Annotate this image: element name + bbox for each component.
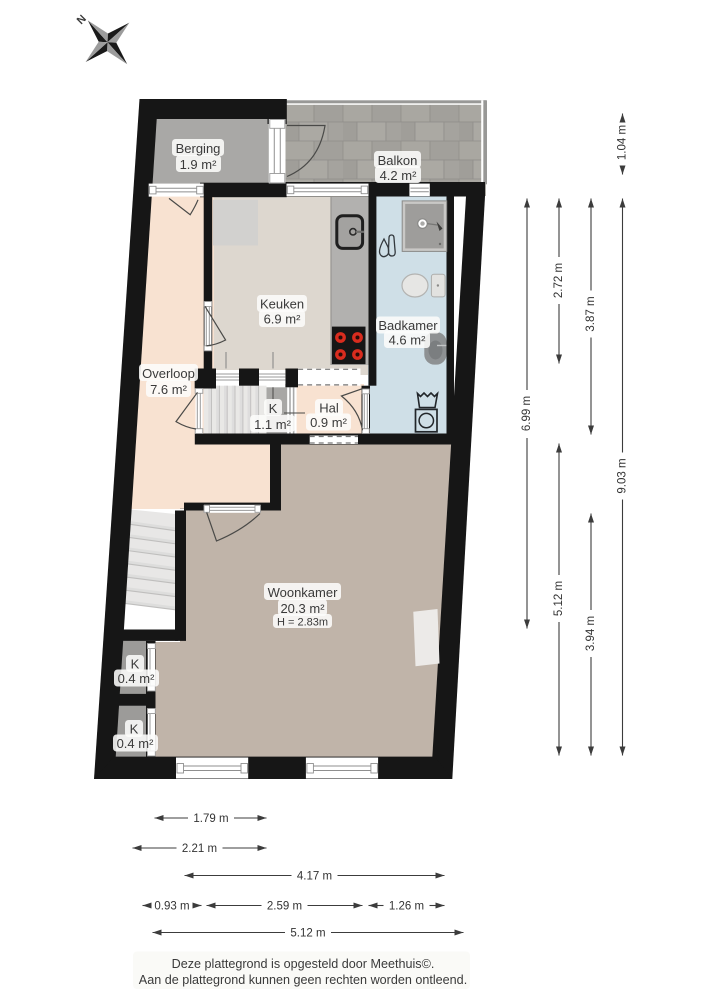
svg-text:Berging: Berging xyxy=(176,141,221,156)
svg-text:9.03 m: 9.03 m xyxy=(617,458,629,493)
svg-text:2.59 m: 2.59 m xyxy=(267,901,302,913)
svg-text:Overloop: Overloop xyxy=(142,366,195,381)
svg-text:K: K xyxy=(269,401,278,416)
svg-text:1.9 m²: 1.9 m² xyxy=(180,157,218,172)
svg-text:0.4 m²: 0.4 m² xyxy=(117,736,155,751)
svg-text:6.9 m²: 6.9 m² xyxy=(264,312,302,327)
svg-text:Hal: Hal xyxy=(319,401,339,416)
svg-text:1.1 m²: 1.1 m² xyxy=(254,417,292,432)
svg-text:1.79 m: 1.79 m xyxy=(193,813,228,825)
svg-text:5.12 m: 5.12 m xyxy=(290,928,325,940)
svg-text:Deze plattegrond is opgesteld: Deze plattegrond is opgesteld door Meeth… xyxy=(172,957,435,971)
svg-text:2.21 m: 2.21 m xyxy=(182,843,217,855)
svg-text:4.2 m²: 4.2 m² xyxy=(380,168,418,183)
svg-text:H = 2.83m: H = 2.83m xyxy=(277,617,328,629)
svg-text:3.87 m: 3.87 m xyxy=(585,296,597,331)
svg-text:K: K xyxy=(131,657,140,672)
svg-text:0.4 m²: 0.4 m² xyxy=(118,671,156,686)
svg-text:0.9 m²: 0.9 m² xyxy=(310,415,348,430)
svg-text:Aan de plattegrond kunnen geen: Aan de plattegrond kunnen geen rechten w… xyxy=(139,973,467,987)
svg-text:2.72 m: 2.72 m xyxy=(553,263,565,298)
svg-text:Balkon: Balkon xyxy=(378,153,418,168)
svg-text:K: K xyxy=(130,722,139,737)
svg-text:4.6 m²: 4.6 m² xyxy=(389,333,427,348)
svg-text:1.26 m: 1.26 m xyxy=(389,901,424,913)
svg-text:6.99 m: 6.99 m xyxy=(521,396,533,431)
svg-text:Badkamer: Badkamer xyxy=(378,318,438,333)
svg-text:1.04 m: 1.04 m xyxy=(617,125,629,160)
svg-text:4.17 m: 4.17 m xyxy=(297,871,332,883)
svg-text:Woonkamer: Woonkamer xyxy=(268,585,339,600)
svg-text:3.94 m: 3.94 m xyxy=(585,616,597,651)
svg-text:0.93 m: 0.93 m xyxy=(154,901,189,913)
svg-text:Keuken: Keuken xyxy=(260,297,304,312)
svg-text:7.6 m²: 7.6 m² xyxy=(150,382,188,397)
svg-text:5.12 m: 5.12 m xyxy=(553,581,565,616)
svg-text:20.3 m²: 20.3 m² xyxy=(280,601,325,616)
